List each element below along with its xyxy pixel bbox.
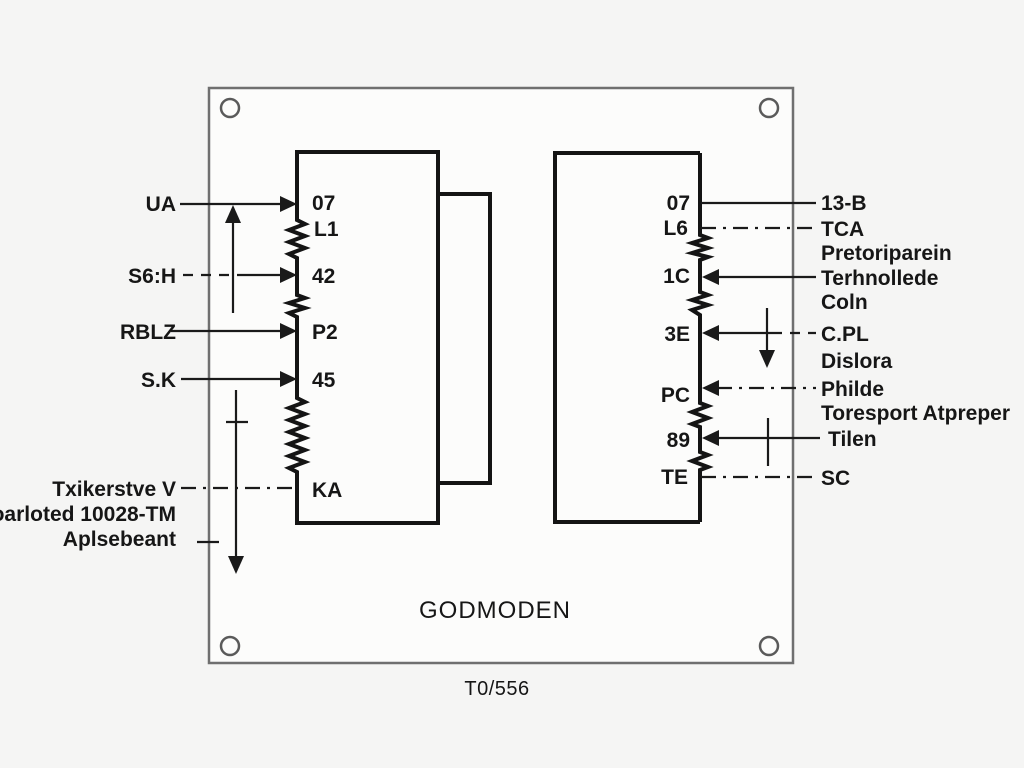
label-dislora: Dislora: [821, 350, 893, 373]
note-line-3: Aplsebeant: [63, 528, 176, 551]
right-pin-l6: L6: [663, 217, 688, 240]
label-rblz: RBLZ: [120, 321, 176, 344]
diagram-code: T0/556: [464, 678, 529, 700]
left-pin-45: 45: [312, 369, 336, 392]
right-pin-3e: 3E: [664, 323, 690, 346]
note-line-1: Txikerstve V: [52, 478, 176, 501]
note-line-2: Foarloted 10028-TM: [0, 503, 176, 526]
label-terhnollede: Terhnollede: [821, 267, 938, 290]
left-pin-42: 42: [312, 265, 335, 288]
right-pin-89: 89: [667, 429, 690, 452]
right-pin-pc: PC: [661, 384, 690, 407]
right-pin-07: 07: [667, 192, 690, 215]
label-philde: Philde: [821, 378, 884, 401]
right-pin-1c: 1C: [663, 265, 690, 288]
right-pin-te: TE: [661, 466, 688, 489]
label-cpl: C.PL: [821, 323, 869, 346]
label-tca: TCA: [821, 218, 864, 241]
diagram-title: GODMODEN: [419, 597, 571, 624]
label-13b: 13-B: [821, 192, 867, 215]
label-tilen: Tilen: [828, 428, 877, 451]
left-pin-ka: KA: [312, 479, 342, 502]
label-coln: Coln: [821, 291, 868, 314]
label-sk: S.K: [141, 369, 176, 392]
label-toresport-atpreper: Toresport Atpreper: [821, 402, 1010, 425]
label-pretoriparein: Pretoriparein: [821, 242, 952, 265]
schematic-figure: 07 L1 42 P2 45 KA 07 L6 1C 3E PC 89 TE U…: [0, 0, 1024, 768]
left-pin-p2: P2: [312, 321, 338, 344]
label-s6h: S6:H: [128, 265, 176, 288]
schematic-svg: 07 L1 42 P2 45 KA 07 L6 1C 3E PC 89 TE U…: [0, 0, 1024, 768]
left-pin-l1: L1: [314, 218, 339, 241]
label-ua: UA: [146, 193, 176, 216]
left-pin-07: 07: [312, 192, 335, 215]
label-sc: SC: [821, 467, 850, 490]
